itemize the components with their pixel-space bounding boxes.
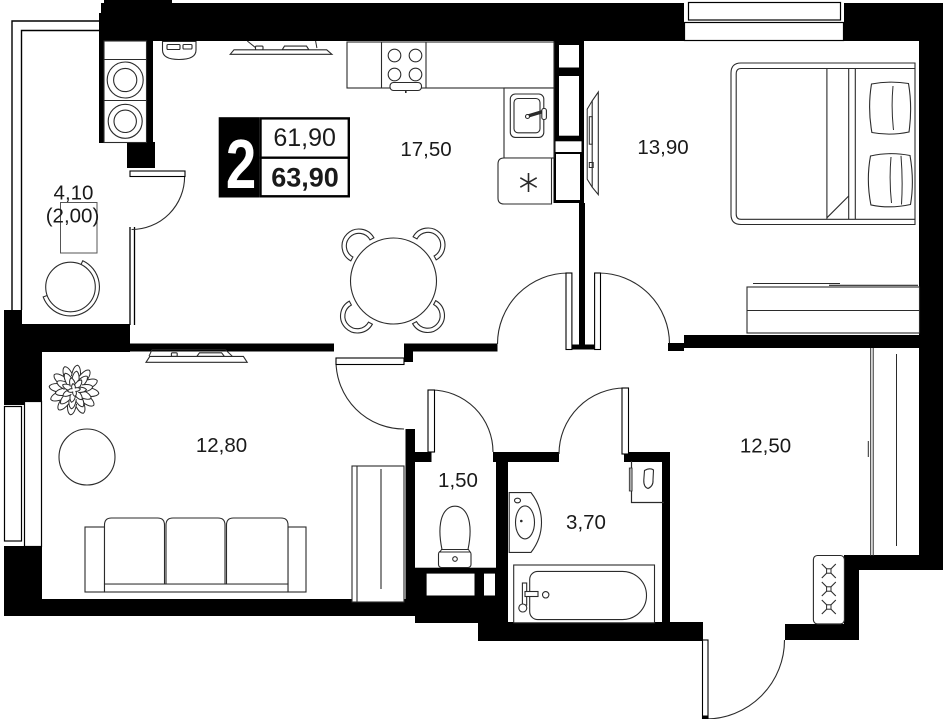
svg-text:1,50: 1,50 xyxy=(438,469,478,492)
svg-text:17,50: 17,50 xyxy=(400,138,451,161)
svg-text:12,50: 12,50 xyxy=(740,435,791,458)
svg-text:3,70: 3,70 xyxy=(566,511,606,534)
svg-text:4,10: 4,10 xyxy=(54,182,94,205)
svg-text:2: 2 xyxy=(226,126,256,204)
svg-text:(2,00): (2,00) xyxy=(46,205,100,228)
svg-text:12,80: 12,80 xyxy=(196,434,247,457)
svg-text:63,90: 63,90 xyxy=(271,163,339,193)
svg-text:13,90: 13,90 xyxy=(637,136,688,159)
svg-text:61,90: 61,90 xyxy=(273,124,336,152)
